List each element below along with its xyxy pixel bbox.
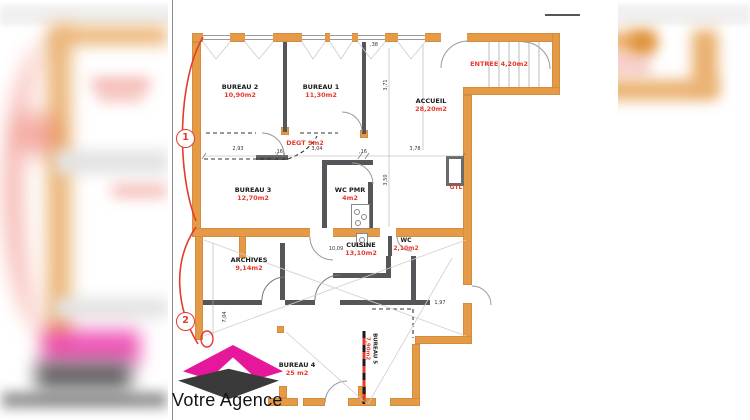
dimension-text: 1,97: [434, 300, 445, 306]
room-label-wc: WC 2,10m2: [393, 237, 418, 252]
window-fan: [245, 42, 273, 59]
dimension-text: 7,04: [222, 311, 228, 322]
room-label-bureau3: BUREAU 3 12,70m2: [235, 186, 272, 202]
room-area: 4m2: [335, 194, 365, 202]
room-label-wc-pmr: WC PMR 4m2: [335, 186, 365, 202]
room-name: CUISINE: [345, 241, 377, 249]
room-area: 12,70m2: [235, 194, 272, 202]
room-label-archives: ARCHIVES 9,14m2: [231, 256, 268, 272]
room-area: 13,10m2: [345, 249, 377, 257]
window-fan: [330, 42, 352, 59]
room-name: WC: [393, 237, 418, 245]
room-area: 9,14m2: [231, 264, 268, 272]
door-arc: [352, 163, 373, 184]
room-name: BUREAU 4: [279, 361, 316, 369]
door-arc: [262, 277, 285, 300]
label-gtl: GTL: [450, 184, 463, 192]
screenshot-stage: 1 2 BUREAU 2 10,90m2 BUREAU 1 11,30m2 AC…: [0, 0, 750, 420]
room-name: BUREAU 1: [303, 83, 340, 91]
room-name: ACCUEIL: [415, 97, 447, 105]
agency-name: Votre Agence: [172, 390, 283, 411]
zone-marker-2: 2: [176, 312, 195, 331]
room-area: 2,10m2: [393, 245, 418, 253]
window-fan: [203, 42, 230, 59]
door-arc: [342, 112, 362, 132]
room-area: 28,20m2: [415, 105, 447, 113]
room-name: ARCHIVES: [231, 256, 268, 264]
room-area: 10,90m2: [222, 91, 259, 99]
zone-number: 2: [182, 315, 189, 326]
gtl-text: GTL: [450, 184, 463, 191]
room-label-bureau2: BUREAU 2 10,90m2: [222, 83, 259, 99]
dimension-text: 3,04: [311, 146, 322, 152]
window-fan: [398, 42, 425, 59]
room-name: BUREAU 3: [235, 186, 272, 194]
door-arc: [325, 381, 347, 403]
room-name: BUREAU 2: [222, 83, 259, 91]
dimension-text: 3,71: [383, 79, 389, 90]
dimension-text: 2,93: [232, 146, 243, 152]
room-label-cuisine: CUISINE 13,10m2: [345, 241, 377, 257]
door-arc: [472, 286, 491, 305]
dimension-text: 3,78: [409, 146, 420, 152]
zone-number: 1: [182, 132, 189, 143]
room-label-bureau5: BUREAU 5 7,90m2: [364, 326, 377, 372]
dimension-text: 10,09: [329, 246, 343, 252]
window-fan: [302, 42, 325, 59]
room-area: 7,90m2: [364, 326, 371, 372]
room-area: 11,30m2: [303, 91, 340, 99]
dimension-text: 3,50: [383, 174, 389, 185]
room-area: 25 m2: [279, 369, 316, 377]
dimension-text: ,38: [370, 42, 378, 48]
room-label-bureau4: BUREAU 4 25 m2: [279, 361, 316, 377]
zone2-brace-loop: [201, 331, 213, 347]
room-name: BUREAU 5: [372, 333, 378, 364]
room-label-accueil: ACCUEIL 28,20m2: [415, 97, 447, 113]
room-name: WC PMR: [335, 186, 365, 194]
room-label-bureau1: BUREAU 1 11,30m2: [303, 83, 340, 99]
dimension-text: ,16: [359, 149, 367, 155]
dimension-text: ,16: [275, 149, 283, 155]
room-name: ENTREE 4,20m2: [470, 60, 528, 68]
zone-marker-1: 1: [176, 129, 195, 148]
dashed-corridor-line: [204, 133, 413, 338]
room-label-entree: ENTREE 4,20m2: [470, 60, 528, 68]
door-arc: [441, 41, 468, 68]
